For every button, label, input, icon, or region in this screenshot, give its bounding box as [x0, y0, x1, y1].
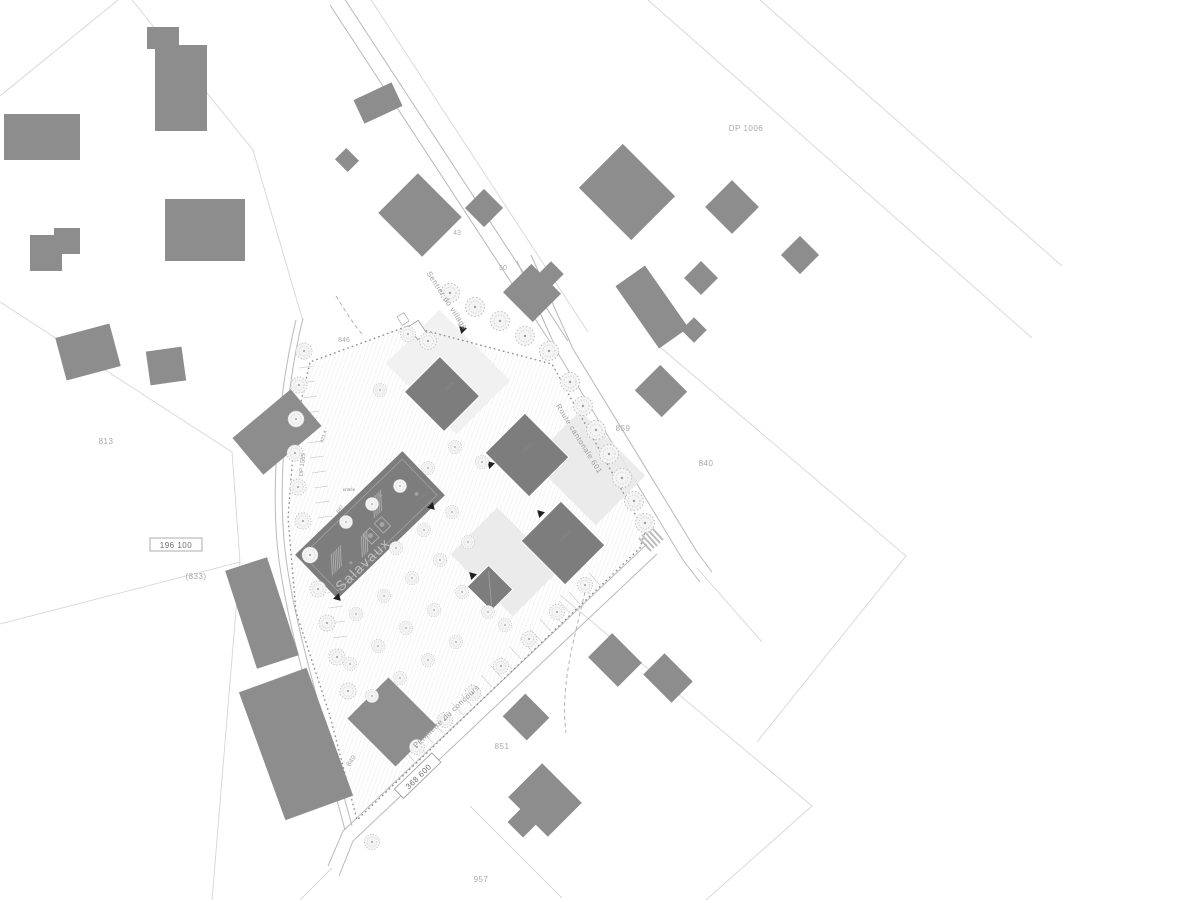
site-plan-drawing: DP 1006 813 (833) 43 50 846 859 840 851 … — [0, 0, 1200, 900]
parcel-label-846: 846 — [338, 337, 350, 344]
parcel-label-43: 43 — [453, 230, 461, 237]
parcel-label-813: 813 — [99, 437, 114, 446]
site-plan-canvas: DP 1006 813 (833) 43 50 846 859 840 851 … — [0, 0, 1200, 900]
parcel-label-851: 851 — [495, 742, 510, 751]
parcel-label-833: (833) — [185, 572, 206, 581]
coordinate-north-text: 196 100 — [160, 541, 192, 550]
shelter-structure — [397, 313, 409, 326]
coordinate-label-north: 196 100 — [150, 538, 202, 551]
parcel-label-50: 50 — [499, 265, 507, 272]
parcel-label-dp1006: DP 1006 — [729, 124, 764, 133]
entrance-annotation: entrée — [343, 487, 356, 492]
parcel-label-859: 859 — [616, 424, 631, 433]
parcel-label-840: 840 — [699, 459, 714, 468]
parcel-label-957: 957 — [474, 875, 489, 884]
